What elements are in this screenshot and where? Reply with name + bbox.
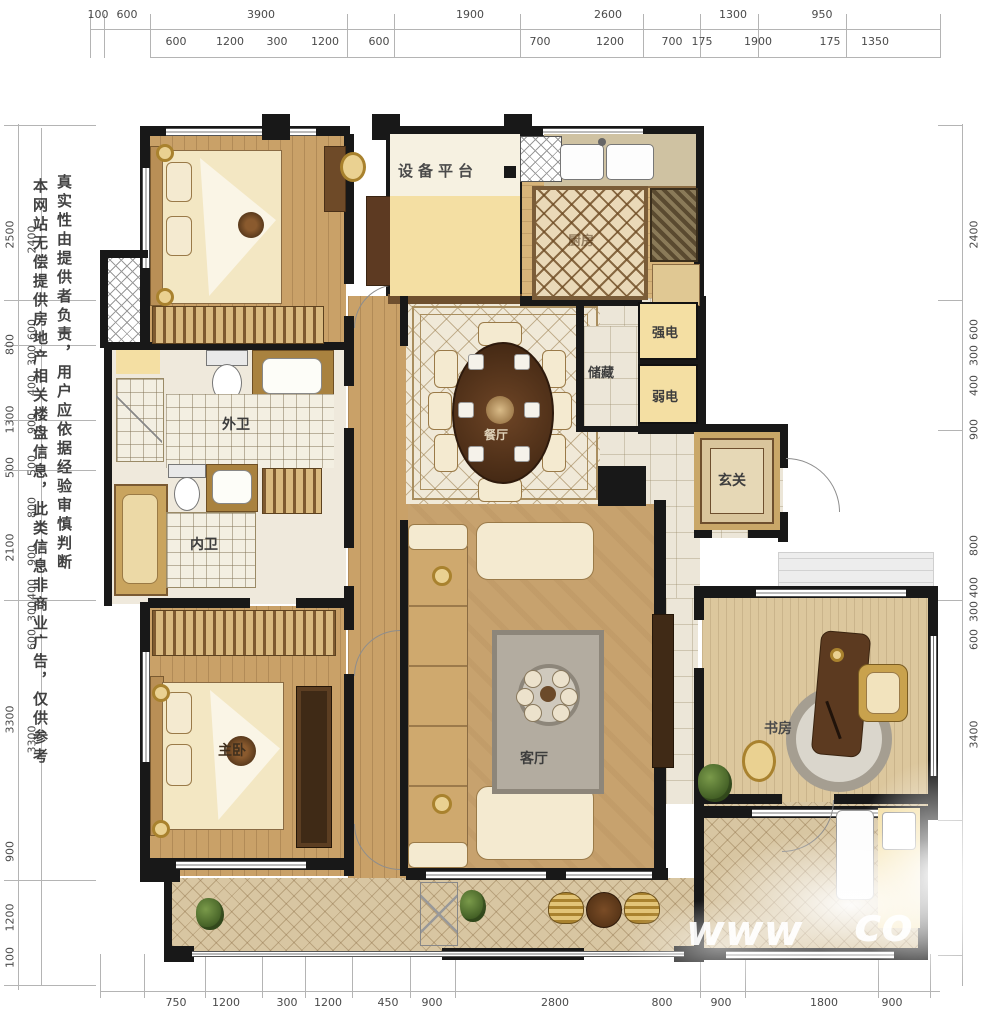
dim-label: 750: [154, 996, 198, 1009]
extension-line: [305, 954, 306, 998]
wall-segment: [100, 250, 108, 348]
dim-label: 1200: [588, 35, 632, 48]
room-label-study: 书房: [764, 718, 792, 738]
cooktop: [520, 136, 562, 182]
rug-petal: [524, 670, 542, 688]
dim-label: 900: [699, 996, 743, 1009]
wall-segment: [344, 674, 354, 876]
dim-label: 950: [800, 8, 844, 21]
wall-segment: [104, 344, 112, 606]
balcony-table: [586, 892, 622, 928]
balcony-cabinet: [420, 882, 458, 946]
plate: [514, 446, 530, 462]
dim-label: 3300: [4, 698, 17, 742]
sink-basin: [606, 144, 654, 180]
extension-line: [643, 14, 644, 58]
rug-center: [540, 686, 556, 702]
rug-petal: [552, 704, 570, 722]
extension-line: [938, 600, 962, 601]
wall-segment: [344, 316, 354, 350]
chaise-lounge: [476, 522, 594, 580]
dim-label: 900: [4, 830, 17, 874]
extension-line: [940, 14, 941, 58]
dim-label: 1300: [4, 398, 17, 442]
range-hood: [650, 188, 698, 262]
wall-segment: [148, 598, 250, 608]
extension-line: [205, 954, 206, 998]
extension-line: [262, 954, 263, 998]
dim-label: 800: [968, 524, 981, 568]
dim-label: 1300: [711, 8, 755, 21]
dim-label: 1200: [303, 35, 347, 48]
wall-segment: [344, 428, 354, 548]
fridge: [652, 264, 700, 306]
dim-label: 600: [968, 618, 981, 662]
dim-label: 600: [357, 35, 401, 48]
balcony-chair: [548, 892, 584, 924]
pillow: [166, 692, 192, 734]
side-stool: [742, 740, 776, 782]
dining-chair: [434, 350, 458, 388]
plate: [524, 402, 540, 418]
dim-label: 175: [680, 35, 724, 48]
dimension-line: [90, 29, 940, 30]
room-label-dining: 餐厅: [484, 426, 508, 443]
extension-line: [938, 430, 962, 431]
tv-wall-unit: [652, 614, 674, 768]
dim-label: 3900: [239, 8, 283, 21]
wardrobe: [152, 610, 336, 656]
window: [176, 861, 306, 869]
balcony-rail: [192, 951, 684, 957]
plate: [468, 354, 484, 370]
toilet-tank: [168, 464, 206, 478]
room-label-foyer: 玄关: [718, 470, 746, 490]
room-label-weak-electric: 弱电: [652, 386, 678, 405]
dim-label: 900: [870, 996, 914, 1009]
dim-label: 400: [968, 364, 981, 408]
room-label-master: 主卧: [218, 740, 246, 760]
chaise-lounge: [476, 786, 594, 860]
potted-plant: [196, 898, 224, 930]
sink-basin: [212, 470, 252, 504]
pillow: [166, 162, 192, 202]
dim-label: 1200: [208, 35, 252, 48]
extension-line: [352, 954, 353, 998]
dim-label: 1200: [4, 896, 17, 940]
extension-line: [4, 125, 96, 126]
watermark-disclaimer: 真实性由提供者负责，用户应依据经验审慎判断: [54, 174, 75, 573]
sofa-armrest: [408, 524, 468, 550]
wall-segment: [576, 304, 584, 430]
corner-ornament: [156, 144, 174, 162]
dim-label: 175: [808, 35, 852, 48]
window: [166, 128, 316, 136]
dim-label: 300: [255, 35, 299, 48]
corner-ornament: [156, 288, 174, 306]
sink-basin: [560, 144, 604, 180]
table-centerpiece: [486, 396, 514, 424]
extension-line: [938, 300, 962, 301]
dimension-line: [18, 124, 19, 990]
rug-petal: [552, 670, 570, 688]
equipment-vent: [504, 166, 516, 178]
dim-label: 3400: [968, 713, 981, 757]
pillow: [166, 216, 192, 256]
dim-label: 2400: [968, 213, 981, 257]
wall-segment: [400, 296, 408, 346]
dim-label: 300: [265, 996, 309, 1009]
dim-label: 500: [4, 446, 17, 490]
dim-label: 800: [4, 323, 17, 367]
dining-chair: [428, 392, 452, 430]
equipment-lower: [390, 196, 520, 296]
dim-label: 900: [410, 996, 454, 1009]
dim-label: 2100: [4, 526, 17, 570]
bed-flower-decor: [238, 212, 264, 238]
wall-block: [598, 466, 646, 506]
extension-line: [410, 954, 411, 998]
dim-label: 700: [518, 35, 562, 48]
window: [756, 589, 906, 597]
watermark-disclaimer: 本网站无偿提供房地产相关楼盘信息，此类信息非商业广告，仅供参考: [30, 178, 51, 767]
dim-label: 100: [4, 936, 17, 980]
watermark-url: co: [854, 898, 913, 952]
dim-label: 600: [105, 8, 149, 21]
wall-post: [164, 946, 194, 962]
wardrobe: [152, 306, 324, 344]
extension-line: [144, 954, 145, 998]
dim-label: 800: [640, 996, 684, 1009]
dim-label: 600: [154, 35, 198, 48]
sink-basin: [262, 358, 322, 394]
extension-line: [938, 125, 962, 126]
tv-cabinet: [296, 686, 332, 848]
desk-chair-cushion: [866, 672, 900, 714]
wall-segment: [400, 520, 408, 876]
wall-segment: [654, 500, 666, 618]
extension-line: [100, 954, 101, 998]
room-label-living: 客厅: [520, 748, 548, 768]
potted-plant: [698, 764, 732, 802]
room-label-outer-bath: 外卫: [222, 414, 250, 434]
dining-chair: [434, 434, 458, 472]
dim-label: 1900: [448, 8, 492, 21]
faucet: [598, 138, 606, 146]
dim-label: 1800: [802, 996, 846, 1009]
desk-ornament: [830, 648, 844, 662]
floor-ornament: [432, 566, 452, 586]
wall-segment: [694, 586, 704, 620]
room-label-equipment: 设备平台: [398, 160, 478, 181]
dim-label: 2600: [586, 8, 630, 21]
room-label-inner-bath: 内卫: [190, 534, 218, 554]
dim-label: 450: [366, 996, 410, 1009]
dim-label: 1350: [853, 35, 897, 48]
extension-line: [4, 880, 96, 881]
sofa-armrest: [408, 842, 468, 868]
dim-label: 900: [968, 408, 981, 452]
window: [930, 636, 937, 776]
plate: [458, 402, 474, 418]
corner-ornament: [152, 684, 170, 702]
watermark-smudge: [850, 760, 999, 990]
room-label-kitchen: 厨房: [568, 230, 594, 249]
dimension-line: [150, 57, 940, 58]
dim-label: 1900: [736, 35, 780, 48]
window: [566, 871, 652, 879]
room-label-strong-electric: 强电: [652, 322, 678, 341]
window: [142, 652, 150, 762]
bath-floor-tiles: [166, 394, 334, 468]
wall-segment: [344, 606, 354, 630]
potted-plant: [460, 890, 486, 922]
corner-ornament: [152, 820, 170, 838]
towel-rack: [262, 468, 322, 514]
dim-label: 1200: [306, 996, 350, 1009]
dim-label: 1200: [204, 996, 248, 1009]
dimension-line: [100, 991, 940, 992]
extension-line: [150, 14, 151, 58]
stool: [340, 152, 366, 182]
floor-plan-canvas: 100 600 3900 1900 2600 1300 950 600 1200…: [0, 0, 999, 1014]
wall-segment: [654, 762, 666, 870]
extension-line: [455, 954, 456, 998]
floor-ornament: [432, 794, 452, 814]
toilet-bowl: [174, 477, 200, 511]
bathtub-basin: [122, 494, 158, 584]
window: [426, 871, 546, 879]
dim-label: 2800: [533, 996, 577, 1009]
dim-label: 2500: [4, 213, 17, 257]
extension-line: [347, 14, 348, 58]
plate: [514, 354, 530, 370]
shower-glass: [116, 378, 162, 460]
floor-corridor: [348, 296, 408, 880]
wall-pier: [262, 114, 290, 140]
pillow: [166, 744, 192, 786]
wall-segment: [344, 348, 354, 386]
plate: [468, 446, 484, 462]
entry-door-arc: [786, 458, 840, 512]
extension-line: [4, 985, 96, 986]
watermark-url: www: [686, 906, 802, 955]
room-label-storage: 储藏: [588, 362, 614, 381]
bath-shelf: [116, 350, 160, 374]
rug-petal: [524, 704, 542, 722]
